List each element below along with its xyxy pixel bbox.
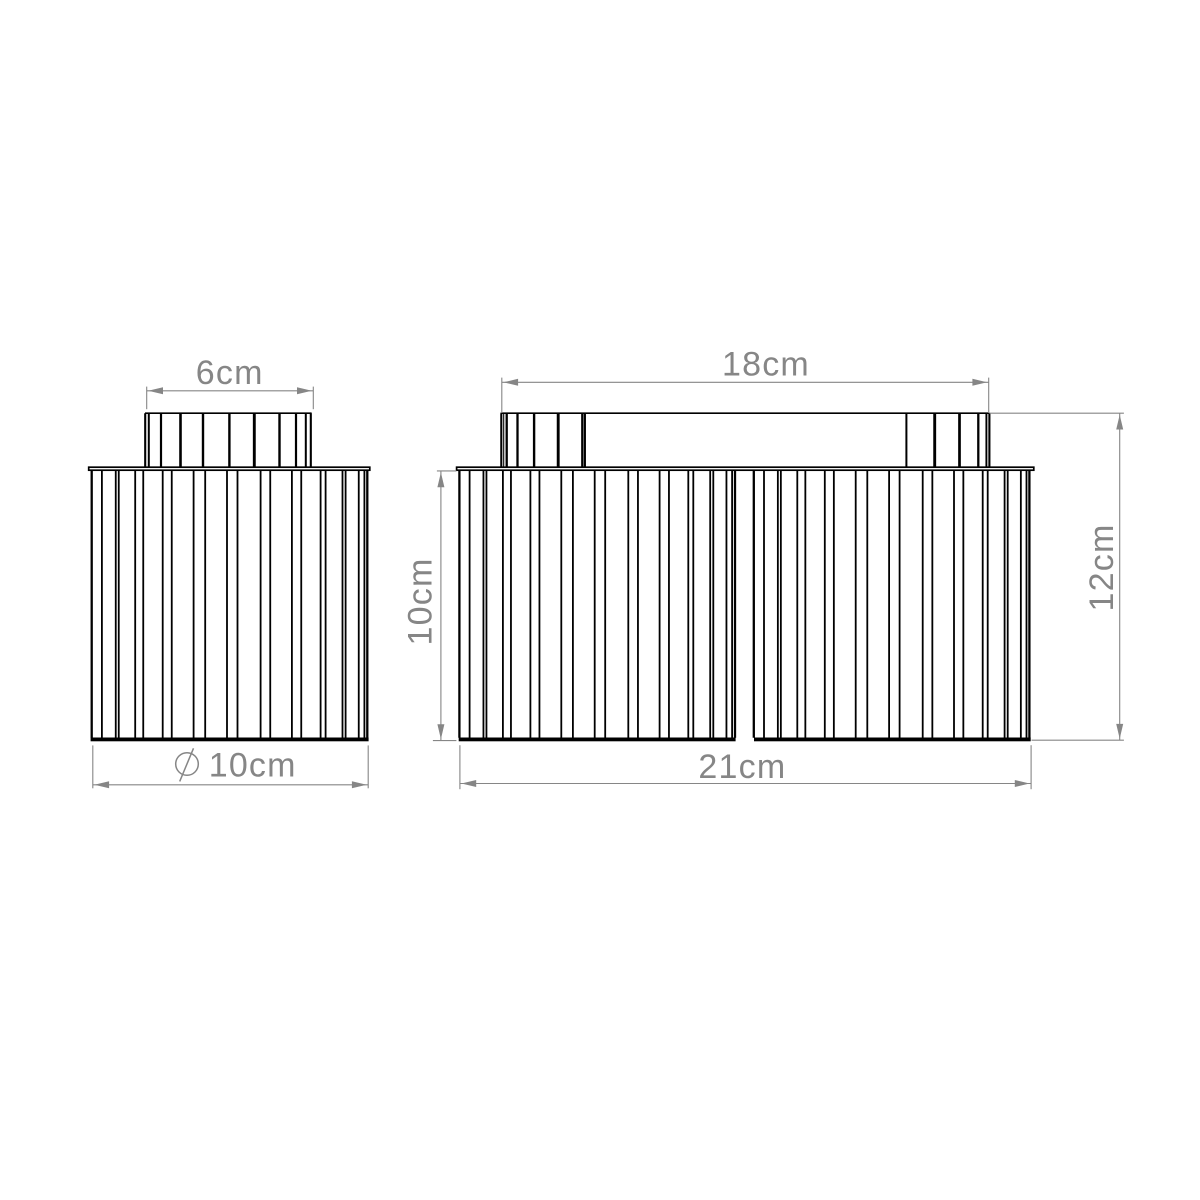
svg-text:6cm: 6cm (196, 354, 264, 392)
svg-text:18cm: 18cm (722, 345, 810, 383)
svg-text:10cm: 10cm (402, 558, 440, 646)
svg-text:12cm: 12cm (1083, 524, 1121, 612)
svg-text:21cm: 21cm (698, 748, 786, 786)
svg-text:10cm: 10cm (209, 747, 297, 785)
